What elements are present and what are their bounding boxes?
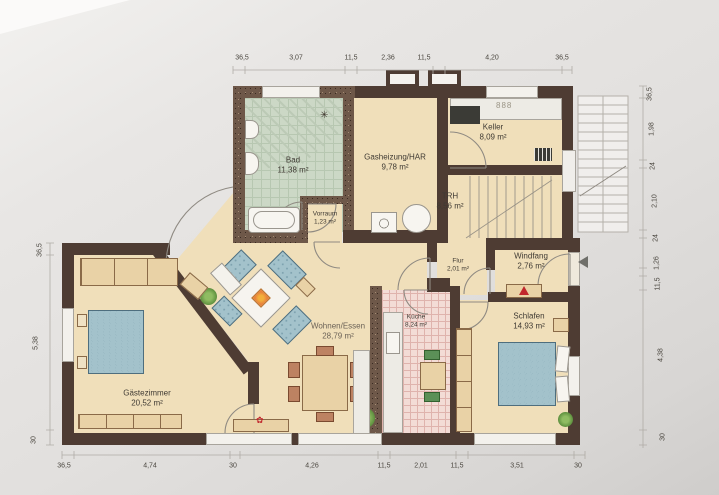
keller-appliance: [450, 106, 480, 124]
stove-burners-icon: 888: [496, 101, 512, 110]
trh-stairs: [466, 176, 552, 238]
kitchen-chair-2: [424, 392, 440, 402]
pillow-1: [555, 345, 571, 372]
room-label-wohnen: Wohnen/Essen28,79 m²: [311, 322, 365, 343]
sideboard-gaestezimmer: [78, 414, 182, 429]
dining-chair-2: [288, 386, 300, 402]
dim-right-1: 1,98: [649, 122, 656, 136]
kitchen-counter: [383, 312, 403, 433]
door-kueche: [404, 290, 428, 314]
dim-right-7: 4,38: [658, 348, 665, 362]
kitchen-table: [420, 362, 446, 390]
bathtub-basin: [253, 211, 295, 229]
dim-top-0: 36,5: [235, 55, 249, 62]
toilet: [245, 120, 259, 139]
door-schlafen: [460, 302, 488, 330]
door-flur-wohnen: [398, 258, 430, 290]
dim-right-2: 24: [650, 162, 657, 170]
nightstand-g1: [77, 314, 87, 327]
floor-plan-photo: ✳ 888 ✿ Bad11,38 m² Gasheizung/H: [0, 0, 719, 495]
wardrobe-schlafen: [456, 328, 472, 432]
bed-gaestezimmer: [88, 310, 144, 374]
room-label-gasheizung: Gasheizung/HAR9,78 m²: [364, 153, 426, 174]
boiler: [402, 204, 431, 233]
dim-bottom-7: 3,51: [510, 463, 524, 470]
room-label-windfang: Windfang2,76 m²: [514, 252, 548, 273]
washing-machine: [371, 212, 397, 233]
vent-grille-icon: [534, 148, 552, 161]
nightstand-g2: [77, 356, 87, 369]
exterior-stairs: [578, 96, 628, 232]
dim-bottom-5: 2,01: [414, 463, 428, 470]
dim-top-2: 11,5: [344, 55, 357, 62]
pillow-2: [555, 375, 570, 402]
dim-bottom-2: 30: [229, 463, 237, 470]
dim-right-8: 30: [660, 433, 667, 441]
bed-schlafen: [498, 342, 556, 406]
plant-schlafen: [558, 412, 573, 427]
sideboard-living: [353, 350, 370, 434]
dim-top-1: 3,07: [289, 55, 303, 62]
dim-top-5: 4,20: [485, 55, 499, 62]
room-label-kueche: Küche8,24 m²: [405, 314, 427, 331]
dim-bottom-0: 36,5: [57, 463, 71, 470]
flower-icon: ✿: [256, 415, 264, 426]
door-vorraum-bottom: [314, 242, 340, 268]
dim-bottom-1: 4,74: [143, 463, 157, 470]
room-label-gaestezimmer: Gästezimmer20,52 m²: [123, 389, 171, 410]
dim-bottom-8: 30: [574, 463, 582, 470]
dining-table: [302, 355, 348, 411]
room-label-vorraum: Vorraum1,23 m²: [313, 211, 338, 228]
dim-right-4: 24: [653, 234, 660, 242]
dim-left-0: 36,5: [37, 243, 44, 257]
wardrobe-gaestezimmer: [80, 258, 178, 286]
dim-left-2: 30: [31, 436, 38, 444]
dim-right-5: 1,26: [654, 256, 661, 270]
dim-top-3: 2,36: [381, 55, 395, 62]
room-label-flur: Flur2,01 m²: [447, 258, 469, 275]
dining-chair-6: [316, 412, 334, 422]
dim-bottom-3: 4,26: [305, 463, 319, 470]
dim-right-6: 11,5: [655, 277, 662, 290]
dim-right-3: 2,10: [652, 194, 659, 208]
dim-right-0: 36,5: [647, 87, 654, 101]
dim-top-6: 36,5: [555, 55, 569, 62]
kitchen-chair-1: [424, 350, 440, 360]
entrance-arrow-icon: [578, 256, 588, 268]
dim-bottom-4: 11,5: [377, 463, 390, 470]
room-label-schlafen: Schlafen14,93 m²: [513, 312, 545, 333]
room-label-trh: TRH8,56 m²: [436, 192, 463, 213]
room-label-keller: Keller8,09 m²: [479, 123, 506, 144]
nightstand-schlafen: [553, 318, 569, 332]
dining-chair-1: [288, 362, 300, 378]
entry-direction-arrow-icon: [519, 286, 529, 295]
kitchen-sink: [386, 332, 400, 354]
dining-chair-5: [316, 346, 334, 356]
fan-icon: ✳: [320, 110, 328, 121]
dim-top-4: 11,5: [417, 55, 430, 62]
room-label-bad: Bad11,38 m²: [278, 156, 309, 177]
dim-bottom-6: 11,5: [450, 463, 463, 470]
dim-left-1: 5,38: [33, 336, 40, 350]
